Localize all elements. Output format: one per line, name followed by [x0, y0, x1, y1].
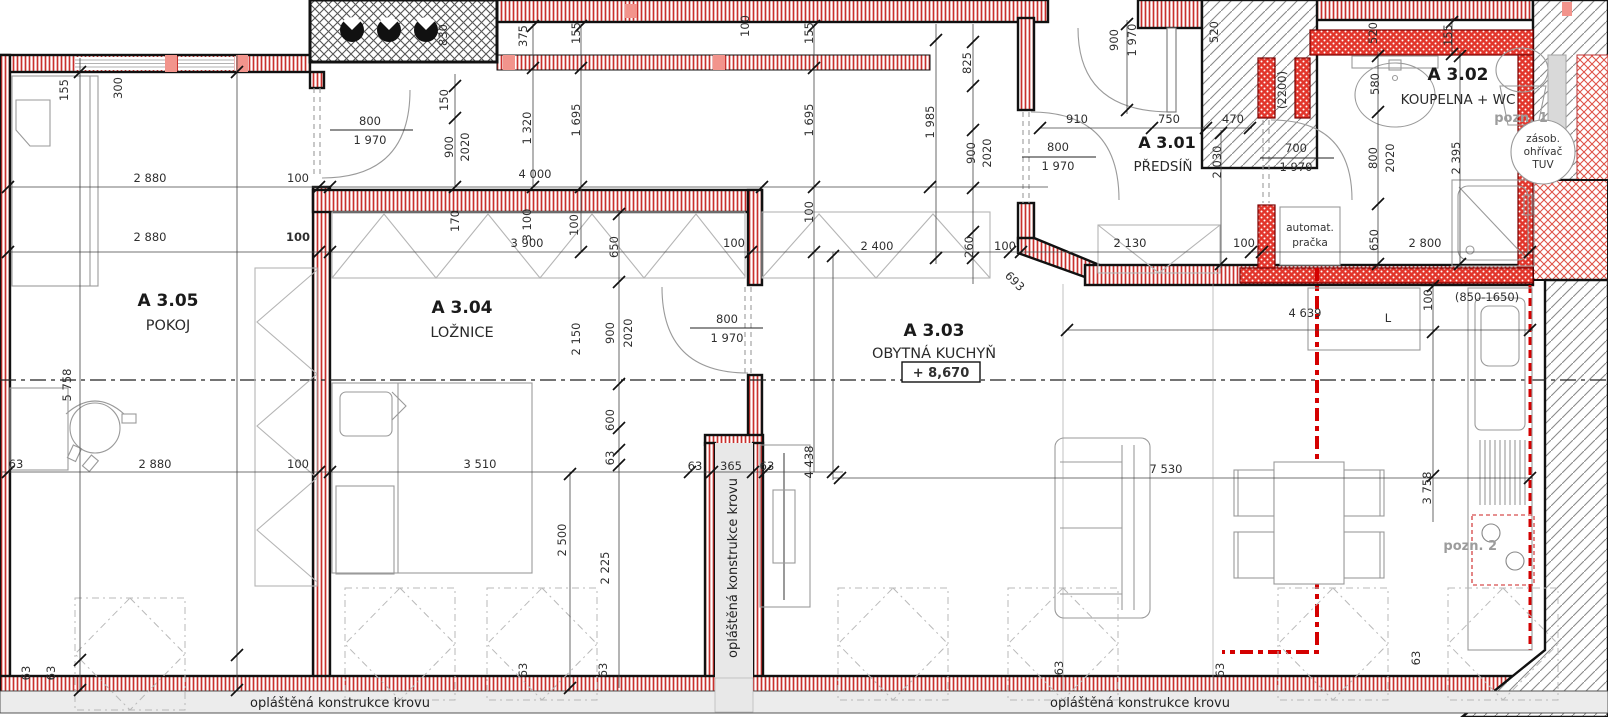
- dim-label: 63: [1409, 651, 1423, 666]
- sheathing-label-left: opláštěná konstrukce krovu: [250, 696, 430, 711]
- dim-label: 63: [1213, 663, 1227, 678]
- dim-label: 100: [286, 230, 310, 244]
- dim-label: 2 130: [1114, 236, 1147, 250]
- dim-label: 63: [516, 663, 530, 678]
- dim-label: 900: [1107, 29, 1121, 51]
- dim-label: 100: [1421, 289, 1435, 311]
- dim-label: 600: [603, 409, 617, 431]
- dim-label: 155: [802, 22, 816, 44]
- dim-label: 3 758: [1420, 472, 1434, 505]
- dim-label: 800: [716, 312, 738, 326]
- dim-label: 2020: [621, 318, 635, 347]
- dim-label: 100: [738, 15, 752, 37]
- room-id-a303: A 3.03: [903, 321, 964, 341]
- dim-label: 520: [1207, 21, 1221, 43]
- dim-label: 700: [1285, 141, 1307, 155]
- dim-label: 650: [607, 236, 621, 258]
- dim-label: 830: [436, 24, 450, 46]
- furniture: [10, 48, 1575, 650]
- dim-label: 1 695: [802, 104, 816, 137]
- dim-label: 100: [723, 236, 745, 250]
- dim-label: (850-1650): [1455, 290, 1519, 304]
- krovu-strip-foot: [715, 678, 753, 712]
- dim-label: 63: [19, 666, 33, 681]
- dim-label: 63: [596, 663, 610, 678]
- bed-loznice: [332, 383, 532, 574]
- dim-label: 1 320: [520, 112, 534, 145]
- bottom-band: [0, 691, 1608, 713]
- dim-label: 2 400: [861, 239, 894, 253]
- dim-label: 2020: [1383, 143, 1397, 172]
- room-id-a305: A 3.05: [137, 291, 198, 311]
- dim-label: 3 510: [464, 457, 497, 471]
- dim-label: 2 880: [134, 171, 167, 185]
- dim-label: 1 970: [354, 133, 387, 147]
- dim-label: 4 000: [519, 167, 552, 181]
- dim-label: 1 970: [711, 331, 744, 345]
- room-id-a302: A 3.02: [1427, 65, 1488, 85]
- dim-label: 2 225: [598, 552, 612, 585]
- door-loznice: [662, 287, 751, 373]
- dim-label: 100: [287, 457, 309, 471]
- dim-label: 1 970: [1125, 24, 1139, 57]
- sofa: [1055, 438, 1150, 618]
- dim-label: 155: [569, 22, 583, 44]
- dim-label: 100: [994, 239, 1016, 253]
- dim-label: 100: [567, 214, 581, 236]
- wardrobe-pokoj: [255, 268, 317, 586]
- dim-label: 300: [111, 77, 125, 99]
- washer-label-1: automat.: [1286, 222, 1334, 234]
- dim-label: 2 880: [134, 230, 167, 244]
- dim-label: 1 985: [923, 106, 937, 139]
- dim-label: 3 900: [511, 236, 544, 250]
- floor-plan: 15530015090020208303751 3201551 6954 000…: [0, 0, 1608, 717]
- dim-label: 825: [960, 52, 974, 74]
- room-name-a303: OBYTNÁ KUCHYŇ: [872, 345, 996, 362]
- dim-label: 2 500: [555, 524, 569, 557]
- dim-label: 100: [1233, 236, 1255, 250]
- dim-label: 2 880: [139, 457, 172, 471]
- heater-label-3: TUV: [1531, 159, 1554, 171]
- sheathing-label-vertical: opláštěná konstrukce krovu: [726, 478, 741, 658]
- bed-pokoj: [12, 76, 98, 286]
- dim-label: 2020: [980, 138, 994, 167]
- chimney-block: [310, 0, 497, 62]
- dim-label: 1 970: [1280, 160, 1313, 174]
- dim-label: 375: [516, 25, 530, 47]
- dim-label: (2200): [1275, 71, 1289, 109]
- dim-label: 470: [1222, 112, 1244, 126]
- dim-label: 155: [57, 79, 71, 101]
- washing-machine: [1280, 207, 1340, 265]
- flue-circles: [340, 17, 438, 42]
- sheathing-label-right: opláštěná konstrukce krovu: [1050, 696, 1230, 711]
- room-name-a301: PŘEDSÍŇ: [1133, 158, 1192, 175]
- room-id-a304: A 3.04: [431, 298, 492, 318]
- red-height-line: [1222, 268, 1317, 652]
- dim-label: 693: [1002, 268, 1027, 293]
- dim-label: 155: [1441, 24, 1455, 46]
- dim-label: 900: [964, 142, 978, 164]
- dim-label: 900: [603, 322, 617, 344]
- level-mark: + 8,670: [913, 366, 970, 381]
- dim-label: 1 695: [569, 104, 583, 137]
- dim-label: 63: [1052, 661, 1066, 676]
- room-name-a304: LOŽNICE: [430, 323, 493, 341]
- dim-label: 800: [1047, 140, 1069, 154]
- dim-label: 800: [359, 114, 381, 128]
- dim-label: 2 395: [1449, 142, 1463, 175]
- dim-label: 2020: [458, 132, 472, 161]
- dim-label: 900: [442, 136, 456, 158]
- dim-label: 365: [720, 459, 742, 473]
- floor-plan-svg: 15530015090020208303751 3201551 6954 000…: [0, 0, 1608, 717]
- dim-label: 2 030: [1210, 146, 1224, 179]
- note-pozn2: pozn. 2: [1443, 539, 1497, 554]
- dim-label: 7 530: [1150, 462, 1183, 476]
- room-id-a301: A 3.01: [1138, 133, 1195, 152]
- dim-label: 63: [688, 459, 703, 473]
- room-name-a302: KOUPELNA + WC: [1401, 92, 1516, 108]
- dim-label: 650: [1367, 229, 1381, 251]
- heater-label-2: ohřívač: [1524, 146, 1563, 158]
- dim-label: 5 758: [60, 369, 74, 402]
- dim-label: 63: [9, 457, 24, 471]
- room-name-a305: POKOJ: [146, 318, 191, 334]
- dim-label: 63: [760, 459, 775, 473]
- heater-label-1: zásob.: [1526, 133, 1560, 145]
- dim-label: 800: [1366, 147, 1380, 169]
- dim-label: 4 438: [802, 446, 816, 479]
- dim-label: 910: [1066, 112, 1088, 126]
- note-pozn1: pozn. 1: [1494, 111, 1548, 126]
- washer-label-2: pračka: [1292, 237, 1328, 249]
- dim-label: 100: [287, 171, 309, 185]
- dim-label: 260: [962, 236, 976, 258]
- dim-label: 170: [448, 210, 462, 232]
- dim-label: 63: [44, 666, 58, 681]
- dim-label: 2 150: [569, 323, 583, 356]
- dim-label: 100: [802, 201, 816, 223]
- dim-label: 4 639: [1289, 306, 1322, 320]
- dim-label: 520: [1366, 22, 1380, 44]
- dim-label: 150: [437, 89, 451, 111]
- dining-set: [1234, 462, 1384, 584]
- dim-label: 63: [603, 451, 617, 466]
- dim-label: L: [1385, 311, 1392, 325]
- dim-label: 750: [1158, 112, 1180, 126]
- dim-label: 1 970: [1042, 159, 1075, 173]
- dim-label: 580: [1368, 73, 1382, 95]
- dim-label: 2 800: [1409, 236, 1442, 250]
